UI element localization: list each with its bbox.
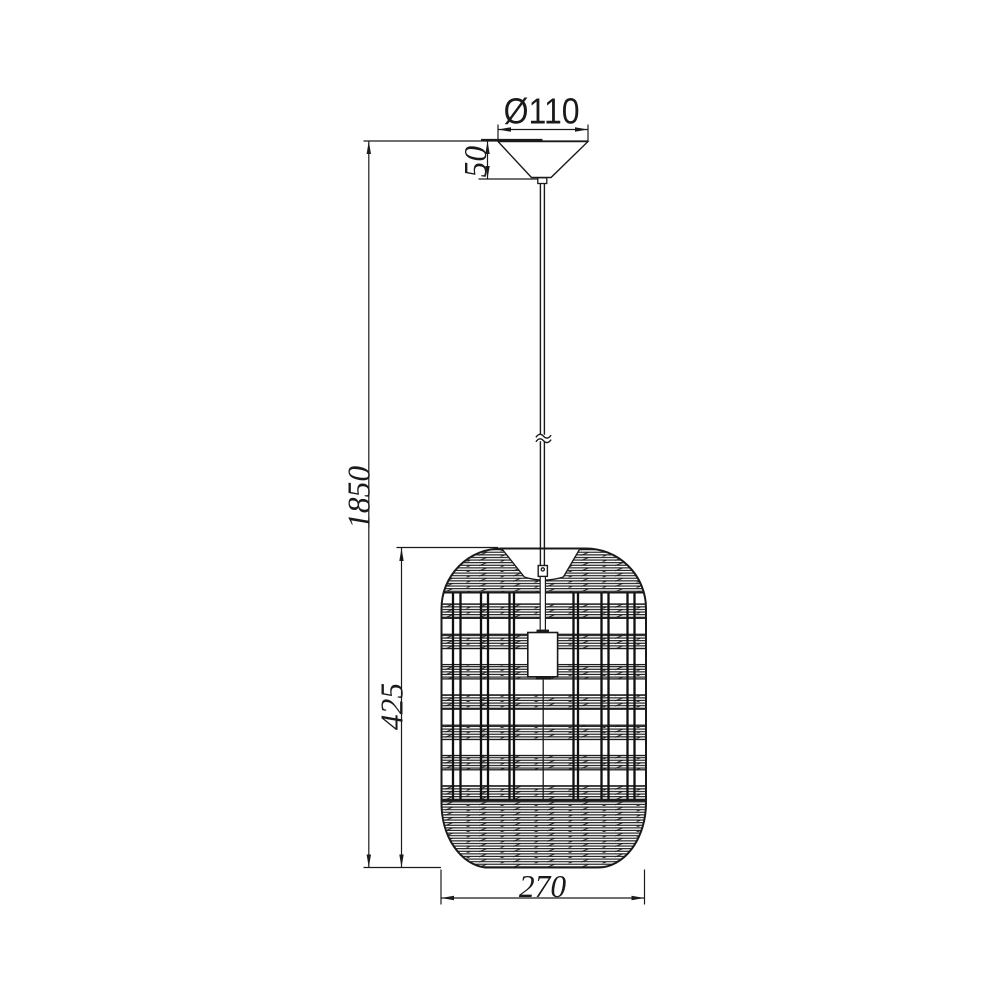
svg-text:50: 50 — [458, 146, 493, 178]
svg-text:270: 270 — [519, 869, 567, 904]
svg-text:1850: 1850 — [342, 466, 377, 529]
svg-text:Ø110: Ø110 — [504, 90, 580, 131]
svg-text:425: 425 — [375, 683, 410, 730]
